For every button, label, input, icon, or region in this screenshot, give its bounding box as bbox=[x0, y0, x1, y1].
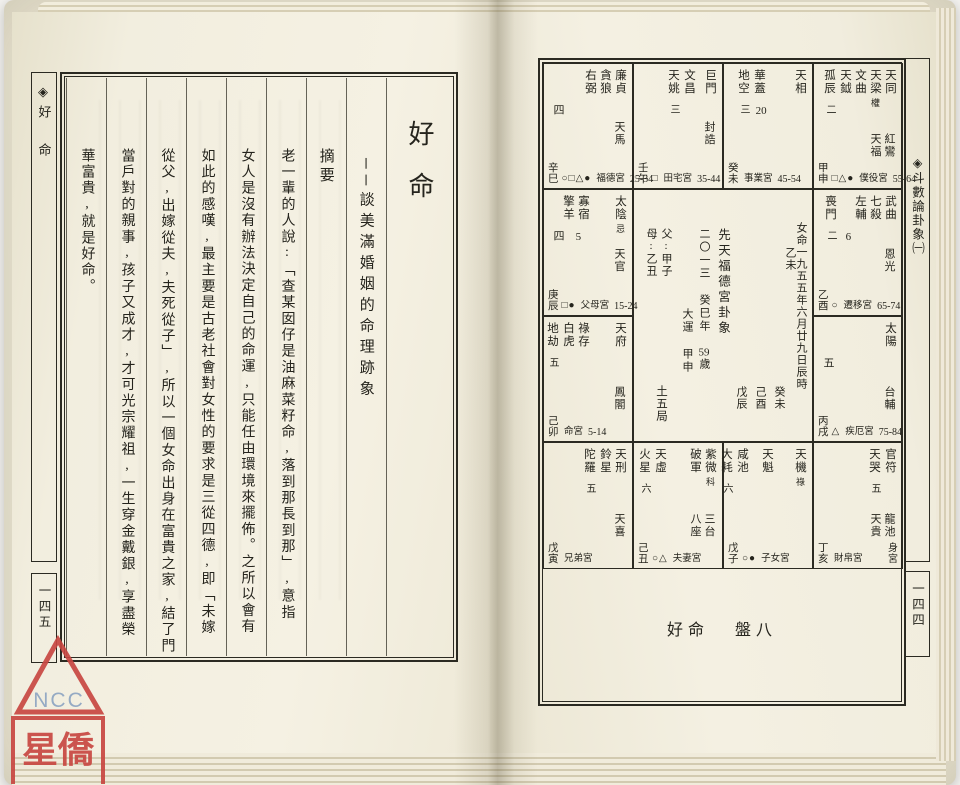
minor-star: 三台 bbox=[701, 513, 717, 538]
stem-branch: 辛巳 bbox=[548, 164, 559, 185]
palace-footer: 戊寅兄弟宮 bbox=[548, 544, 628, 565]
minor-star: 四 bbox=[550, 230, 566, 243]
minor-star: 紅鸞 bbox=[881, 133, 897, 158]
decade-range: 35-44 bbox=[697, 174, 720, 185]
star: 左輔 bbox=[852, 195, 867, 240]
palace-name: 夫妻宮 bbox=[673, 550, 702, 564]
stamp-letters: NCC bbox=[33, 689, 85, 712]
palace-name: 福德宮 bbox=[596, 170, 625, 184]
right-page-frame: 女命一九五五年六月廿九日辰時 乙未 先天福德宮卦象 二〇一三 癸巳年 59歲 大… bbox=[538, 58, 906, 706]
palace-cell-福德宮: 廉貞貪狼右弼四天馬辛巳○□△●福德宮25-34 bbox=[543, 63, 633, 189]
palace-cell-命宮: 天府祿存白虎地劫五鳳閣己卯命宮5-14 bbox=[543, 316, 633, 442]
stem-branch: 戊子 bbox=[728, 544, 739, 565]
decade-range: 65-74 bbox=[877, 301, 900, 312]
abstract-header-column: 摘要 bbox=[306, 78, 346, 656]
decade-range: 45-54 bbox=[778, 174, 801, 185]
stem-branch: 己卯 bbox=[548, 417, 559, 438]
palace-stars: 廉貞貪狼右弼 bbox=[582, 69, 627, 95]
star: 天同 bbox=[882, 69, 897, 114]
star: 天姚三 bbox=[665, 69, 681, 114]
page-stack-right-edge bbox=[936, 8, 956, 761]
stem-branch: 丁亥 bbox=[818, 544, 829, 565]
palace-stars: 紫微科破軍天虛火星六 bbox=[636, 448, 717, 493]
palace-stars: 太陽 bbox=[882, 322, 897, 348]
palace-name: 子女宮 bbox=[761, 550, 790, 564]
palace-footer: 庚辰□●父母宮15-24 bbox=[548, 291, 628, 312]
palace-footer: 己卯命宮5-14 bbox=[548, 417, 628, 438]
chapter-title: 好命 bbox=[401, 78, 438, 656]
palace-cell-夫妻宮: 紫微科破軍天虛火星六三台八座己丑○△夫妻宮 bbox=[633, 442, 723, 569]
star: 廉貞 bbox=[612, 69, 627, 95]
luck-symbols: □△● bbox=[832, 173, 855, 184]
palace-cell-子女宮: 天機祿天魁咸池大耗六戊子○●子女宮 bbox=[723, 442, 813, 569]
star: 右弼 bbox=[582, 69, 597, 95]
minor-star: 四 bbox=[550, 104, 566, 117]
palace-name: 父母宮 bbox=[581, 297, 610, 311]
star: 孤辰二 bbox=[821, 69, 837, 114]
star: 天機祿 bbox=[792, 448, 807, 493]
right-margin-label: ◈斗數論卦象㈠ bbox=[908, 59, 927, 561]
star: 陀羅五 bbox=[581, 448, 597, 493]
star: 天刑 bbox=[612, 448, 627, 493]
star: 火星六 bbox=[636, 448, 652, 493]
decade-ganzhi: 甲申 bbox=[681, 348, 693, 374]
palace-stars: 官符天哭五 bbox=[866, 448, 897, 493]
body-text-column: 華富貴,就是好命。 bbox=[66, 78, 106, 656]
star: 擎羊 bbox=[560, 195, 575, 233]
right-margin-strip: ◈斗數論卦象㈠ bbox=[905, 58, 930, 562]
body-text-column: 當戶對的親事,孩子又成才,才可光宗耀祖,一生穿金戴銀,享盡榮 bbox=[106, 78, 146, 656]
stem-branch: 乙酉 bbox=[818, 291, 829, 312]
caption-plate-number: 盤八 bbox=[735, 622, 777, 639]
star: 太陰忌 bbox=[612, 195, 627, 233]
minor-star: 封誥 bbox=[701, 121, 717, 146]
star: 巨門 bbox=[702, 69, 717, 114]
palace-footer: 辛巳○□△●福德宮25-34 bbox=[548, 164, 628, 185]
palace-cell-父母宮: 太陰忌寡宿擎羊四5天官庚辰□●父母宮15-24 bbox=[543, 189, 633, 316]
star: 文曲 bbox=[852, 69, 867, 114]
minor-star: 5 bbox=[576, 231, 582, 243]
left-page-frame: 好命 ──談美滿婚姻的命理跡象 摘要 老一輩的人說:「查某囡仔是油麻菜籽命,落到… bbox=[60, 72, 458, 662]
page-stack-bottom-edge bbox=[12, 753, 946, 785]
palace-name: 兄弟宮 bbox=[564, 550, 593, 564]
luck-symbols: ○● bbox=[742, 553, 756, 564]
star: 七殺 bbox=[867, 195, 882, 240]
minor-star: 天福 bbox=[867, 133, 883, 158]
palace-name: 事業宮 bbox=[744, 170, 773, 184]
palace-cell-疾厄宮: 太陽五台輔丙戌△疾厄宮75-84 bbox=[813, 316, 903, 442]
stem-branch: 丙戌 bbox=[818, 417, 829, 438]
minor-star: 龍池 bbox=[881, 513, 897, 538]
palace-name: 遷移宮 bbox=[844, 297, 873, 311]
father-pillar: 父:甲子 bbox=[658, 228, 674, 277]
subtitle-column: ──談美滿婚姻的命理跡象 bbox=[346, 78, 386, 656]
text-columns: 好命 ──談美滿婚姻的命理跡象 摘要 老一輩的人說:「查某囡仔是油麻菜籽命,落到… bbox=[66, 78, 452, 656]
star: 官符 bbox=[882, 448, 897, 493]
chapter-subtitle: ──談美滿婚姻的命理跡象 bbox=[356, 78, 377, 656]
star: 喪門二 bbox=[822, 195, 838, 240]
star: 破軍 bbox=[687, 448, 702, 493]
caption-title: 好命 bbox=[667, 622, 709, 639]
palace-stars: 天相華蓋地空三 bbox=[735, 69, 807, 114]
stem-branch: 甲申 bbox=[818, 164, 829, 185]
star: 大耗六 bbox=[718, 448, 734, 493]
palace-footer: 己丑○△夫妻宮 bbox=[638, 544, 718, 565]
minor-star: 鳳閣 bbox=[611, 386, 627, 411]
luck-symbols: ○□△● bbox=[562, 173, 592, 184]
minor-star: 台輔 bbox=[881, 386, 897, 411]
star: 天府 bbox=[612, 322, 627, 367]
body-text-column: 從父,出嫁從夫,夫死從子」,所以一個女命出身在富貴之家,結了門 bbox=[146, 78, 186, 656]
minor-star: 天馬 bbox=[611, 121, 627, 146]
stem-branch: 己丑 bbox=[638, 544, 649, 565]
palace-footer: 戊子○●子女宮 bbox=[728, 544, 808, 565]
chart-center-panel: 女命一九五五年六月廿九日辰時 乙未 先天福德宮卦象 二〇一三 癸巳年 59歲 大… bbox=[633, 189, 813, 442]
palace-cell-僕役宮: 天同天梁權文曲天鉞孤辰二紅鸞天福甲申□△●僕役宮55-64 bbox=[813, 63, 903, 189]
book-photo: { "left_page": { "margin_label": "◈好 命",… bbox=[0, 0, 960, 785]
star: 文昌 bbox=[681, 69, 696, 114]
minor-star: 天貴 bbox=[867, 513, 883, 538]
palace-name: 疾厄宮 bbox=[845, 423, 874, 437]
minor-star: 20 bbox=[756, 105, 767, 117]
right-page-number: 一四四 bbox=[908, 572, 927, 656]
star: 祿存 bbox=[575, 322, 590, 367]
palace-footer: 癸未事業宮45-54 bbox=[728, 164, 808, 185]
luck-symbols: □ bbox=[652, 173, 659, 184]
star: 地劫五 bbox=[544, 322, 560, 367]
palace-footer: 丙戌△疾厄宮75-84 bbox=[818, 417, 898, 438]
left-margin-strip: ◈好 命 bbox=[31, 72, 57, 562]
star: 太陽 bbox=[882, 322, 897, 348]
body-text-column: 如此的感嘆,最主要是古老社會對女性的要求是三從四德,即「未嫁 bbox=[186, 78, 226, 656]
four-pillars: 癸未己酉戊辰 bbox=[733, 386, 787, 410]
palace-footer: 丁亥財帛宮身宮 bbox=[818, 544, 898, 565]
body-text-column: 老一輩的人說:「查某囡仔是油麻菜籽命,落到那長到那」,意指 bbox=[266, 78, 306, 656]
chart-grid: 女命一九五五年六月廿九日辰時 乙未 先天福德宮卦象 二〇一三 癸巳年 59歲 大… bbox=[543, 63, 903, 569]
palace-cell-遷移宮: 武曲七殺左輔喪門二6恩光乙酉○遷移宮65-74 bbox=[813, 189, 903, 316]
palace-name: 田宅宮 bbox=[664, 170, 693, 184]
star: 天鉞 bbox=[837, 69, 852, 114]
palace-cell-兄弟宮: 天刑鈴星陀羅五天喜戊寅兄弟宮 bbox=[543, 442, 633, 569]
star: 天魁 bbox=[759, 448, 774, 493]
palace-stars: 天刑鈴星陀羅五 bbox=[581, 448, 627, 493]
palace-stars: 天府祿存白虎地劫五 bbox=[544, 322, 627, 367]
star: 紫微科 bbox=[702, 448, 717, 493]
minor-star: 恩光 bbox=[881, 248, 897, 273]
minor-star: 天喜 bbox=[611, 513, 627, 538]
luck-symbols: ○△ bbox=[652, 553, 668, 564]
star: 天哭五 bbox=[866, 448, 882, 493]
minor-star: 6 bbox=[846, 231, 852, 243]
star: 咸池 bbox=[734, 448, 749, 493]
palace-stars: 武曲七殺左輔喪門二 bbox=[822, 195, 897, 240]
year-pillar: 乙未 bbox=[782, 247, 798, 271]
flow-year-line: 二〇一三 癸巳年 59歲 bbox=[696, 228, 712, 371]
mother-pillar: 母:乙丑 bbox=[643, 228, 659, 277]
abstract-header: 摘要 bbox=[316, 78, 337, 656]
palace-name: 財帛宮 bbox=[834, 550, 863, 564]
luck-symbols: □● bbox=[562, 300, 576, 311]
decade-range: 15-24 bbox=[614, 301, 637, 312]
minor-star: 五 bbox=[820, 357, 836, 370]
body-text-column: 女人是沒有辦法決定自己的命運,只能任由環境來擺佈。之所以會有 bbox=[226, 78, 266, 656]
palace-cell-事業宮: 天相華蓋地空三20癸未事業宮45-54 bbox=[723, 63, 813, 189]
body-palace-tag: 身宮 bbox=[888, 544, 898, 565]
star: 天相 bbox=[792, 69, 807, 114]
palace-name: 命宮 bbox=[564, 423, 583, 437]
palace-stars: 巨門文昌天姚三 bbox=[665, 69, 717, 114]
stem-branch: 壬午 bbox=[638, 164, 649, 185]
palace-stars: 天同天梁權文曲天鉞孤辰二 bbox=[821, 69, 897, 114]
palace-cell-田宅宮: 巨門文昌天姚三封誥壬午□田宅宮35-44 bbox=[633, 63, 723, 189]
star: 寡宿 bbox=[575, 195, 590, 233]
palace-stars: 天機祿天魁咸池大耗六 bbox=[718, 448, 807, 493]
ncc-stamp: NCC 星僑 bbox=[10, 634, 106, 784]
left-margin-label: ◈好 命 bbox=[35, 73, 54, 561]
minor-star: 天官 bbox=[611, 248, 627, 273]
chart-caption: 好命盤八 bbox=[540, 616, 904, 640]
star: 貪狼 bbox=[597, 69, 612, 95]
palace-cell-財帛宮: 官符天哭五龍池天貴丁亥財帛宮身宮 bbox=[813, 442, 903, 569]
luck-symbols: △ bbox=[832, 426, 841, 437]
star: 地空三 bbox=[735, 69, 751, 114]
right-page-number-box: 一四四 bbox=[905, 571, 930, 657]
palace-stars: 太陰忌寡宿擎羊 bbox=[560, 195, 627, 233]
decade-range: 75-84 bbox=[879, 427, 902, 438]
luck-symbols: ○ bbox=[832, 300, 839, 311]
chart-heading: 先天福德宮卦象 bbox=[714, 228, 733, 337]
five-element-bureau: 土五局 bbox=[653, 385, 669, 423]
stem-branch: 戊寅 bbox=[548, 544, 559, 565]
palace-footer: 乙酉○遷移宮65-74 bbox=[818, 291, 898, 312]
palace-name: 僕役宮 bbox=[859, 170, 888, 184]
star: 武曲 bbox=[882, 195, 897, 240]
minor-star: 八座 bbox=[687, 513, 703, 538]
chapter-title-column: 好命 bbox=[386, 78, 452, 656]
star: 白虎 bbox=[560, 322, 575, 367]
palace-footer: 壬午□田宅宮35-44 bbox=[638, 164, 718, 185]
decade-range: 5-14 bbox=[588, 427, 606, 438]
stamp-name: 星僑 bbox=[22, 730, 95, 770]
stem-branch: 癸未 bbox=[728, 164, 739, 185]
star: 天梁權 bbox=[867, 69, 882, 114]
age-number: 59 bbox=[698, 347, 710, 358]
palace-footer: 甲申□△●僕役宮55-64 bbox=[818, 164, 898, 185]
star: 鈴星 bbox=[597, 448, 612, 493]
age-suffix: 歲 bbox=[698, 358, 710, 371]
stem-branch: 庚辰 bbox=[548, 291, 559, 312]
decade-line: 大運 甲申 bbox=[679, 308, 695, 374]
flow-year: 二〇一三 癸巳年 bbox=[698, 228, 710, 333]
star: 天虛 bbox=[652, 448, 667, 493]
decade-label: 大運 bbox=[681, 308, 693, 334]
